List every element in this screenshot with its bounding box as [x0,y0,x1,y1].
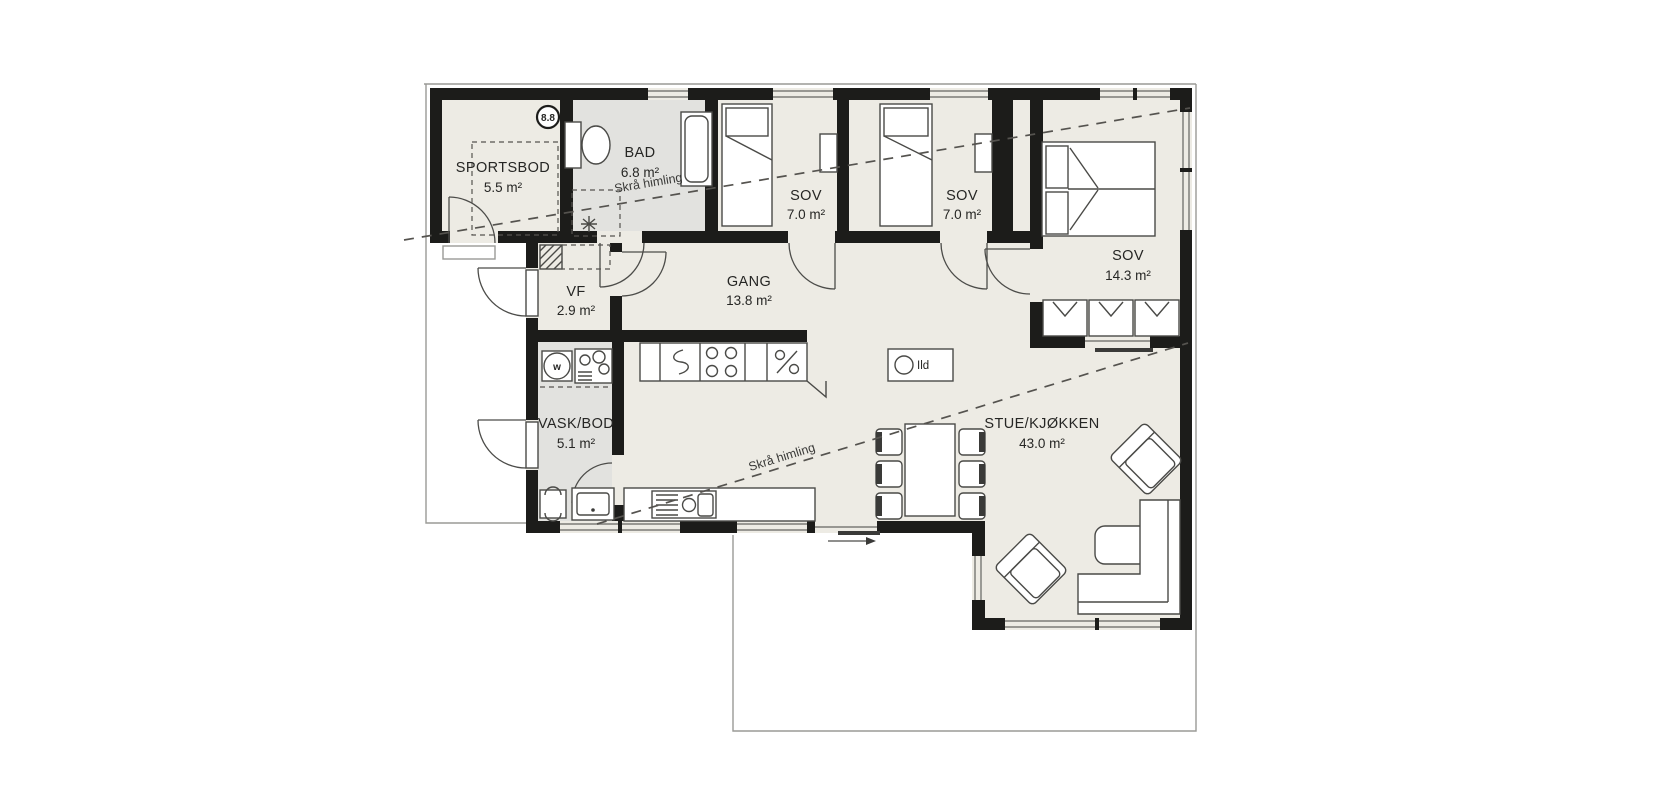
room-label-gang: GANG [727,274,771,290]
bed-icon [722,104,772,226]
door-entry-vf [478,268,538,316]
elevation-marker: 8.8 [537,106,559,128]
washbasin-icon [572,488,614,520]
svg-text:8.8: 8.8 [541,113,555,124]
room-area-vf: 2.9 m² [557,303,596,318]
svg-text:w: w [552,362,561,373]
bathtub-icon [681,112,712,186]
svg-text:Ild: Ild [917,360,929,372]
wardrobe-icons [1043,300,1179,336]
entry-step [443,246,495,259]
room-label-sportsbod: SPORTSBOD [456,160,550,176]
room-label-sov1: SOV [790,188,822,204]
dining-table-icon [876,424,985,519]
floor-plan-page: w [0,0,1670,800]
double-bed-icon [1042,142,1155,236]
washing-machine-icon: w [542,351,572,381]
room-area-vaskbod: 5.1 m² [557,436,596,451]
room-label-sov2: SOV [946,188,978,204]
desk-icon [820,134,837,172]
kitchen-counter-bottom [624,488,815,521]
desk-icon [975,134,992,172]
room-label-bad: BAD [624,145,655,161]
room-area-sov-master: 14.3 m² [1105,268,1151,283]
laundry-sink-icon [575,349,612,383]
room-label-stue: STUE/KJØKKEN [984,416,1099,432]
door-swing-arrow [866,537,876,545]
room-label-vf: VF [566,284,585,300]
room-area-sov1: 7.0 m² [787,207,826,222]
floor-plan-drawing: w [0,0,1670,800]
room-area-stue: 43.0 m² [1019,436,1065,451]
laundry-base-unit-icon [540,487,566,521]
door-entry-laundry [478,420,538,468]
bed-icon [880,104,932,226]
room-area-gang: 13.8 m² [726,293,772,308]
room-area-sportsbod: 5.5 m² [484,180,523,195]
room-area-bad: 6.8 m² [621,165,660,180]
room-label-vaskbod: VASK/BOD [538,416,614,432]
room-area-sov2: 7.0 m² [943,207,982,222]
toilet-icon [565,122,610,168]
room-label-sov-master: SOV [1112,248,1144,264]
fireplace-icon: Ild [888,349,953,381]
